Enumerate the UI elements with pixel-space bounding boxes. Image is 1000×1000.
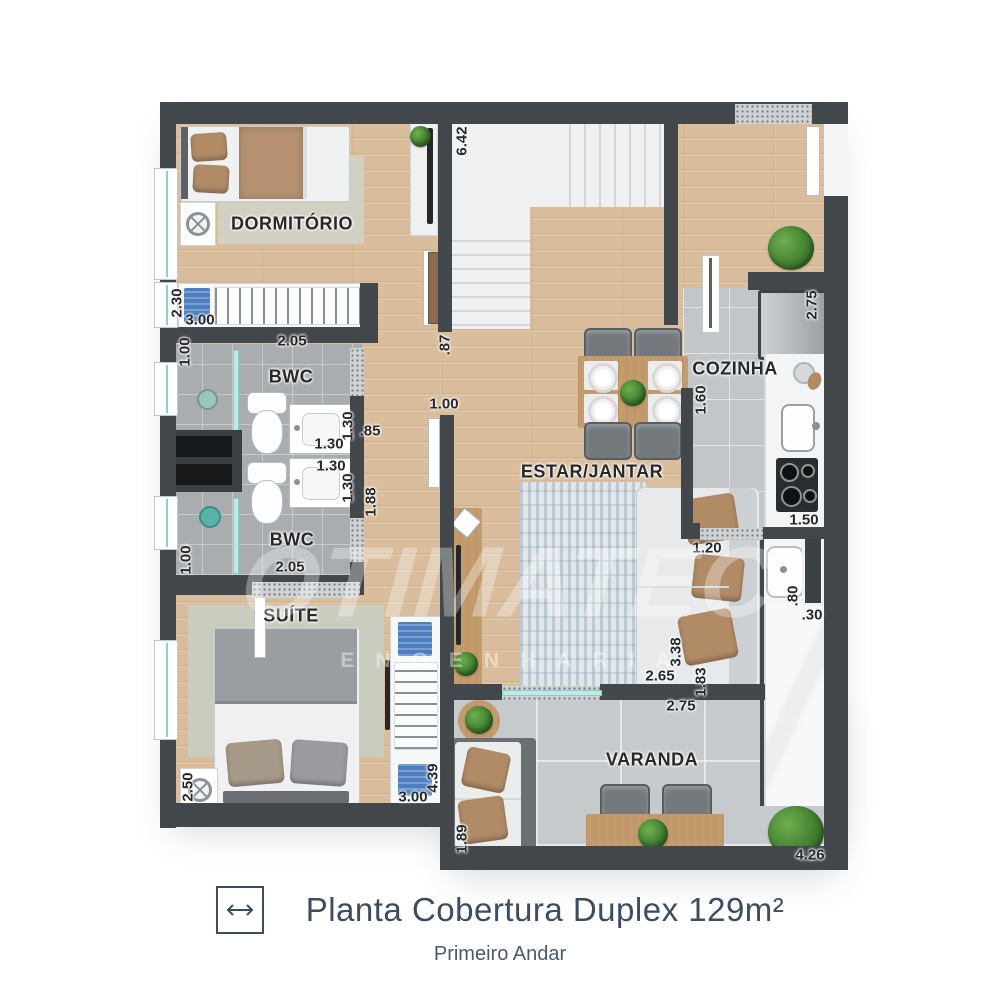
dim-varanda-width: 4.26 [795, 847, 824, 864]
burner-icon [781, 486, 802, 507]
wall-bottom-varanda [440, 846, 848, 870]
floor-plan-stage: DORMITÓRIO BWC BWC SUÍTE ESTAR/JANTAR CO… [0, 0, 1000, 1000]
suite-bed [214, 628, 360, 810]
burner-icon [801, 464, 815, 478]
dim-stairs-exit: .87 [437, 335, 454, 356]
suite-blanket [215, 629, 357, 704]
wardrobe-storage-box [398, 622, 432, 656]
entry-door-leaf [806, 126, 820, 196]
dim-hall-door-top: .85 [360, 423, 381, 440]
plant-icon [768, 226, 814, 270]
bed-sheet-fold [303, 127, 307, 199]
room-label-cozinha: COZINHA [692, 359, 778, 380]
window [154, 168, 178, 280]
toilet-bowl [251, 480, 283, 524]
dim-varanda-top: 2.75 [666, 698, 695, 715]
closet-niche [176, 464, 232, 485]
room-label-bwc-bottom: BWC [270, 530, 315, 551]
dim-dorm-wardrobe-depth: 2.30 [169, 288, 186, 317]
burner-icon [803, 489, 817, 503]
wall-stairs-right [664, 115, 678, 325]
shower-head-icon [199, 506, 221, 528]
dim-bwc-bottom-width: 2.05 [275, 559, 304, 576]
dim-estar-door: 1.00 [429, 396, 458, 413]
ceiling-fan-icon [186, 212, 210, 236]
plate-icon [652, 363, 682, 393]
stove [776, 458, 818, 512]
width-arrow-icon [216, 886, 264, 934]
dim-varanda-sofa-side: 1.89 [454, 824, 471, 853]
dim-sofa-height: 3.38 [668, 637, 685, 666]
wall-stairs-dormitorio [438, 102, 452, 332]
window [154, 640, 178, 740]
window-hatch-top [735, 104, 812, 124]
faucet-icon [812, 422, 820, 430]
entry-door-gap [824, 124, 848, 196]
shower-glass [233, 498, 239, 574]
bed-pillow [190, 132, 228, 162]
wall-varanda-top-left [440, 684, 502, 700]
stairs-treads-left [452, 228, 530, 329]
burner-icon [780, 463, 799, 482]
dim-cozinha-width: 1.60 [693, 385, 710, 414]
sofa-pillow [691, 554, 745, 603]
sofa-pillow [677, 607, 740, 666]
window [154, 362, 178, 416]
room-label-bwc-top: BWC [269, 367, 314, 388]
hall-door-leaf [428, 418, 440, 488]
laundry-cabinet [802, 536, 824, 606]
plant-icon [410, 126, 431, 147]
plant-icon [454, 652, 478, 676]
page-title: Planta Cobertura Duplex 129m² [306, 891, 785, 929]
bwc-top-door-hatch [350, 348, 364, 396]
faucet-icon [294, 479, 300, 485]
dim-tub-side: .30 [802, 607, 823, 624]
bwc-bottom-door-hatch [350, 518, 364, 562]
dim-bwc-top-width: 2.05 [277, 333, 306, 350]
room-label-varanda: VARANDA [606, 750, 698, 771]
wall-cozinha-door-jamb [681, 523, 700, 539]
page-subtitle: Primeiro Andar [434, 943, 566, 966]
faucet-icon [780, 566, 787, 573]
wall-cozinha-half [681, 388, 693, 523]
suite-pillow [290, 739, 349, 787]
dining-chair [634, 422, 682, 460]
dining-chair [584, 422, 632, 460]
suite-pillow [225, 739, 285, 788]
wardrobe-hangers [394, 662, 438, 750]
wall-laundry-top [763, 527, 824, 539]
living-tv [456, 545, 461, 645]
faucet-icon [294, 425, 300, 431]
dim-stairs-height: 6.42 [454, 126, 471, 155]
plant-icon [465, 706, 493, 734]
wall-right [824, 102, 848, 870]
wardrobe-hangers [214, 287, 362, 325]
room-label-suite: SUÍTE [263, 606, 319, 627]
living-sofa [636, 487, 760, 690]
room-label-dormitorio: DORMITÓRIO [231, 214, 353, 235]
dim-suite-fan-side: 2.50 [180, 772, 197, 801]
dim-varanda-side: 1.83 [693, 667, 710, 696]
suite-headboard [223, 791, 349, 803]
ceiling-fan-box [180, 202, 216, 246]
varanda-counter [764, 604, 824, 806]
dim-sink-top-width: 1.30 [314, 436, 343, 453]
caption-block: Planta Cobertura Duplex 129m² Primeiro A… [0, 886, 1000, 966]
dim-sofa-width: 2.65 [645, 668, 674, 685]
glass-door-line [502, 690, 602, 696]
dormitorio-bed [180, 126, 350, 202]
bed-pillow [192, 164, 229, 194]
wall-chunk [360, 283, 378, 343]
dim-bwc-bottom-left: 1.00 [178, 545, 195, 574]
dim-sink-bottom-height: 1.30 [340, 473, 357, 502]
plant-icon [638, 819, 668, 849]
wall-wardrobe-bottom [172, 327, 364, 343]
plant-icon [620, 380, 646, 406]
dim-sink-bottom-width: 1.30 [316, 458, 345, 475]
wall-estar-left [440, 415, 454, 862]
closet-niche [176, 436, 232, 457]
dim-varanda-door: 1.20 [692, 540, 721, 557]
wall-cozinha-top [748, 272, 826, 290]
dim-dorm-wardrobe-width: 3.00 [185, 312, 214, 329]
sofa-cushion-seam [637, 586, 729, 588]
dim-suite-wardrobe-width: 3.00 [398, 789, 427, 806]
toilet-bowl [251, 410, 283, 454]
dim-fridge-side: 2.75 [804, 290, 821, 319]
laundry-edge-wall [760, 538, 764, 806]
plate-icon [588, 363, 618, 393]
stair-guard-rail-core [709, 258, 712, 328]
stairs-treads-top [556, 115, 664, 207]
dim-bwc-top-left: 1.00 [177, 337, 194, 366]
cozinha-varanda-door-hatch [700, 528, 763, 540]
suite-tv [385, 660, 390, 730]
dim-tub-height: .80 [785, 586, 802, 607]
living-rug [520, 482, 646, 688]
kitchen-sink [781, 404, 815, 452]
wall-bottom-suite [160, 803, 454, 827]
window [154, 496, 178, 550]
room-label-estar-jantar: ESTAR/JANTAR [521, 462, 663, 483]
shower-head-icon [197, 389, 218, 410]
bed-blanket [239, 127, 303, 199]
dim-stove-width: 1.50 [789, 512, 818, 529]
suite-door-hatch [252, 582, 360, 598]
bed-headboard [181, 127, 188, 199]
dim-hall-door-bottom: 1.88 [363, 487, 380, 516]
